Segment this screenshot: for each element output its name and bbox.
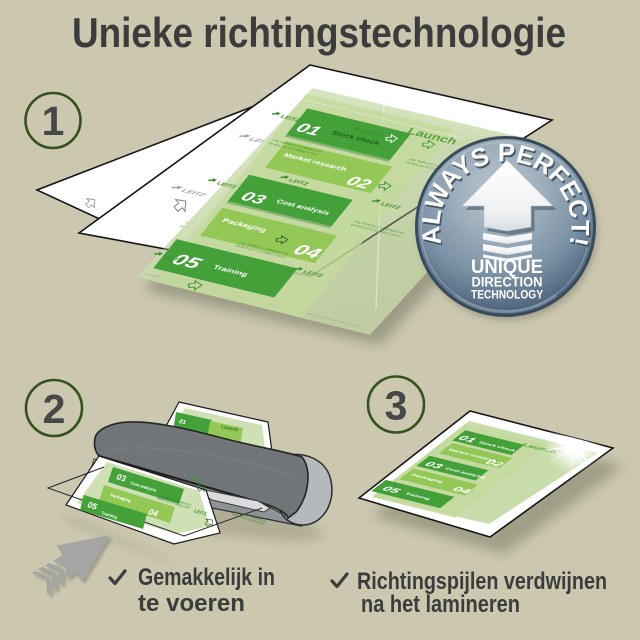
svg-text:2: 2 xyxy=(43,386,66,432)
svg-text:na het lamineren: na het lamineren xyxy=(361,591,520,618)
svg-text:Gemakkelijk in: Gemakkelijk in xyxy=(138,564,275,591)
svg-text:TECHNOLOGY: TECHNOLOGY xyxy=(471,288,543,302)
svg-text:1: 1 xyxy=(42,98,65,144)
svg-text:Unieke richtingstechnologie: Unieke richtingstechnologie xyxy=(72,9,566,56)
svg-text:3: 3 xyxy=(385,383,408,429)
svg-text:te voeren: te voeren xyxy=(138,590,245,617)
